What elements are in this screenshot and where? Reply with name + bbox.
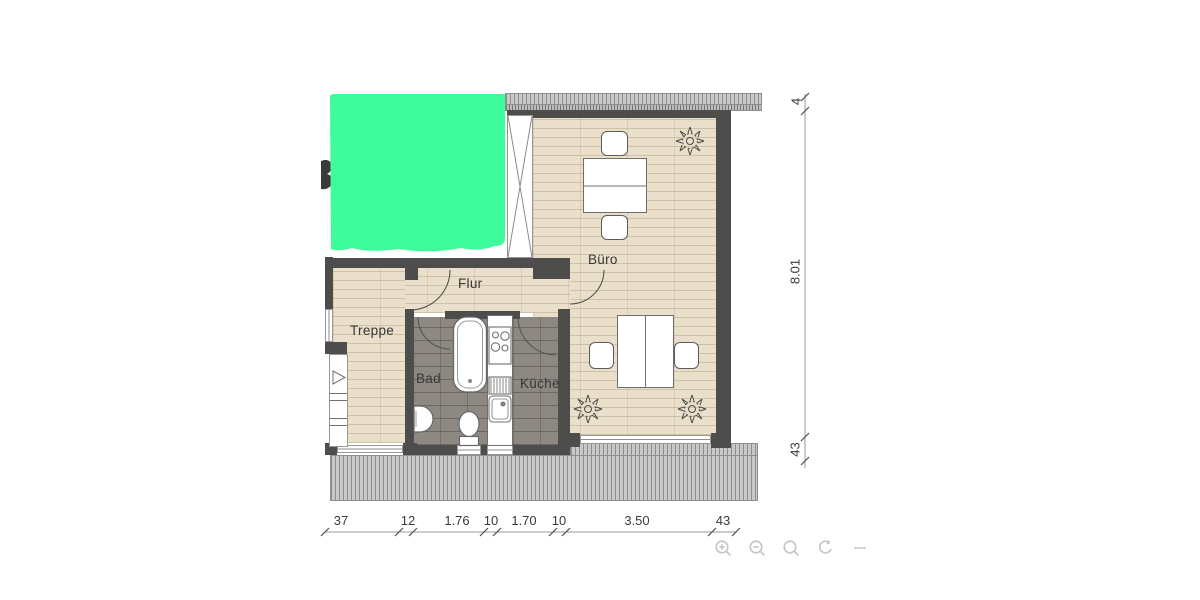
wall-bad-left	[405, 309, 414, 455]
dim-label: 4	[789, 80, 804, 124]
toolbar-dash	[850, 539, 869, 558]
desk-chair-top	[601, 131, 628, 156]
wall-treppe-stub	[405, 266, 418, 280]
desk	[583, 158, 647, 213]
viewer-toolbar	[714, 534, 884, 562]
dimension-ticks-bottom	[321, 528, 740, 536]
floor-plan-canvas: Treppe Flur Büro Bad Küche 37 12 1.76 10…	[0, 0, 1200, 600]
zoom-out-icon	[748, 539, 767, 558]
wall-right	[716, 110, 731, 448]
dim-label: 37	[317, 513, 365, 528]
dim-label: 10	[535, 513, 583, 528]
wall-top	[507, 110, 723, 118]
dash-icon	[852, 542, 868, 554]
kitchen-counter	[487, 315, 513, 446]
search-button[interactable]	[782, 539, 801, 558]
shaft-void	[507, 115, 533, 258]
window-left	[325, 309, 333, 342]
dim-label: 43	[699, 513, 747, 528]
wall-kueche-south	[513, 445, 558, 455]
stair-window	[329, 354, 348, 447]
wall-buero-south-l	[570, 433, 580, 447]
wall-kueche-right	[558, 309, 570, 455]
ink-blob	[321, 160, 332, 189]
window-kueche-south	[487, 445, 513, 455]
rotate-icon	[816, 539, 835, 558]
zoom-in-icon	[714, 539, 733, 558]
room-label-buero: Büro	[588, 252, 618, 267]
room-label-treppe: Treppe	[350, 323, 394, 338]
wall-left-upper	[325, 257, 333, 309]
wall-left-lintel	[325, 342, 347, 354]
dim-label: 8.01	[788, 250, 803, 294]
roof-hatch-bottom	[330, 455, 758, 501]
table-chair-right	[674, 342, 699, 369]
rotate-button[interactable]	[816, 539, 835, 558]
window-buero-south	[580, 435, 711, 444]
dim-label: 43	[788, 428, 803, 472]
zoom-in-button[interactable]	[714, 539, 733, 558]
window-bad-south	[457, 445, 481, 455]
room-label-flur: Flur	[458, 276, 482, 291]
table-chair-left	[589, 342, 614, 369]
search-icon	[782, 539, 801, 558]
dining-table	[617, 315, 674, 388]
redaction-overlay	[330, 94, 505, 251]
wall-bad-south	[413, 445, 457, 455]
wall-buero-stub	[533, 262, 570, 279]
zoom-out-button[interactable]	[748, 539, 767, 558]
wall-buero-south-r	[711, 433, 731, 448]
desk-chair-bottom	[601, 215, 628, 240]
room-label-kueche: Küche	[520, 376, 560, 391]
dim-label: 3.50	[613, 513, 661, 528]
dim-label: 12	[384, 513, 432, 528]
room-label-bad: Bad	[416, 371, 441, 386]
